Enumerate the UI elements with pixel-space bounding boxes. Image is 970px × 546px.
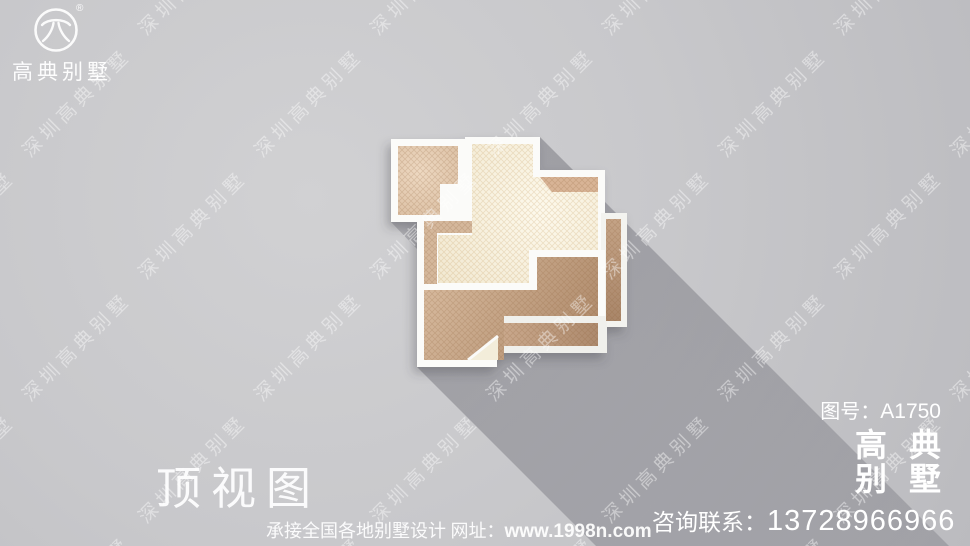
square-roof-shadow-wedge (391, 222, 417, 249)
footer-service-line: 承接全国各地别墅设计 网址：www.1998n.com (266, 517, 652, 543)
roof-bottom-strip (504, 323, 598, 346)
drawing-number-value: A1750 (880, 400, 941, 423)
brand-line-2: 别墅 (855, 462, 963, 496)
contact-label: 咨询联系： (652, 510, 767, 535)
view-title: 顶视图 (156, 452, 321, 517)
registered-trademark-symbol: ® (76, 3, 83, 14)
phone-number: 13728966966 (767, 505, 955, 537)
render-canvas: 深圳高典别墅深圳高典别墅深圳高典别墅深圳高典别墅深圳高典别墅深圳高典别墅深圳高典… (0, 0, 970, 546)
footer-contact-line: 咨询联系：13728966966 (652, 503, 955, 538)
logo-text: 高典别墅 (12, 56, 112, 86)
website-url: www.1998n.com (505, 521, 652, 542)
villa-top-view-render (0, 0, 970, 546)
service-text: 承接全国各地别墅设计 (266, 521, 446, 541)
brand-name-block: 高典 别墅 (855, 428, 941, 496)
drawing-number-label: 图号： (820, 401, 880, 423)
drawing-number: 图号：A1750 (820, 395, 941, 424)
website-label: 网址： (451, 521, 505, 541)
brand-line-1: 高典 (855, 428, 963, 462)
gaodian-emblem-icon (32, 6, 80, 54)
roof-right-column (606, 219, 621, 321)
